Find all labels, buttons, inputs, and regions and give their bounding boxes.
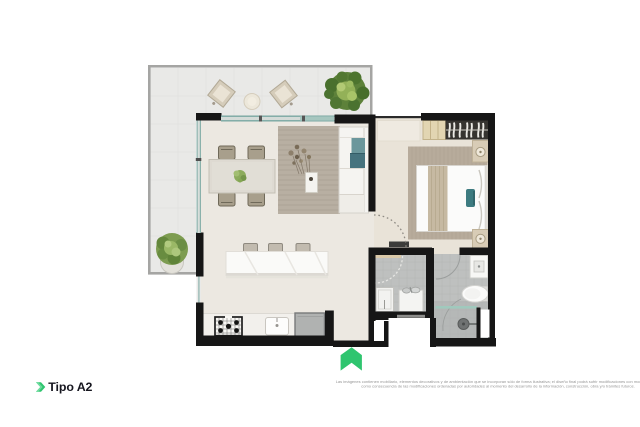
svg-text:como consecuencia de las modif: como consecuencia de las modificaciones … <box>361 384 634 389</box>
svg-text:Tipo A2: Tipo A2 <box>48 380 92 394</box>
